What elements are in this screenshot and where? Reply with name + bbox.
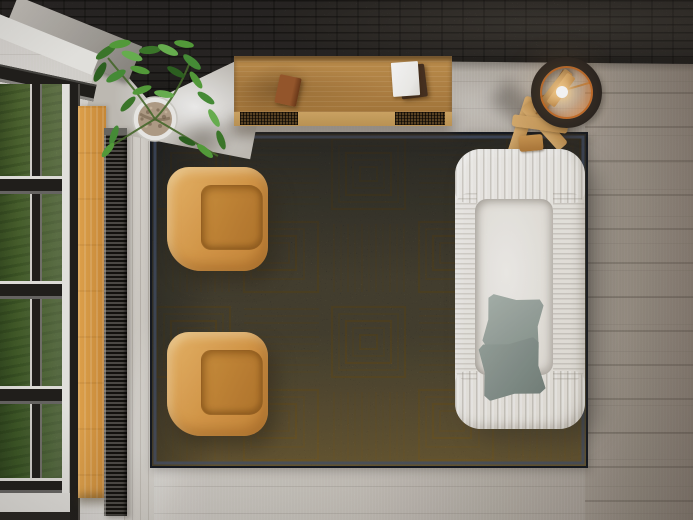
window-mullion-horizontal	[0, 386, 62, 404]
window-bottom-frame	[0, 478, 62, 493]
window-frame-trim	[62, 84, 70, 493]
armchair-seat	[201, 350, 263, 416]
white-papers	[391, 61, 420, 97]
sofa-backrest	[553, 193, 585, 381]
window-mullion-horizontal	[0, 176, 62, 194]
leather-strap	[518, 134, 543, 152]
leather-armchair	[167, 167, 268, 271]
window-bottom-sill	[0, 493, 70, 512]
window-mullion-horizontal	[0, 281, 62, 299]
window-mullion-vertical	[30, 84, 42, 520]
sofa-pillow	[477, 336, 547, 401]
leather-armchair	[167, 332, 268, 436]
potted-plant	[78, 22, 238, 172]
armchair-seat	[201, 185, 263, 251]
speaker-grille	[395, 112, 445, 125]
living-room-scene	[0, 0, 693, 520]
floor-vent-grille	[104, 128, 127, 516]
window-wall	[0, 84, 80, 520]
sofa-front-edge	[455, 193, 477, 381]
window-base-shadow	[0, 512, 80, 520]
wood-floor-dark-area	[585, 58, 693, 520]
oak-sideboard	[234, 56, 452, 126]
lamp-bulb-glowing	[556, 86, 568, 98]
